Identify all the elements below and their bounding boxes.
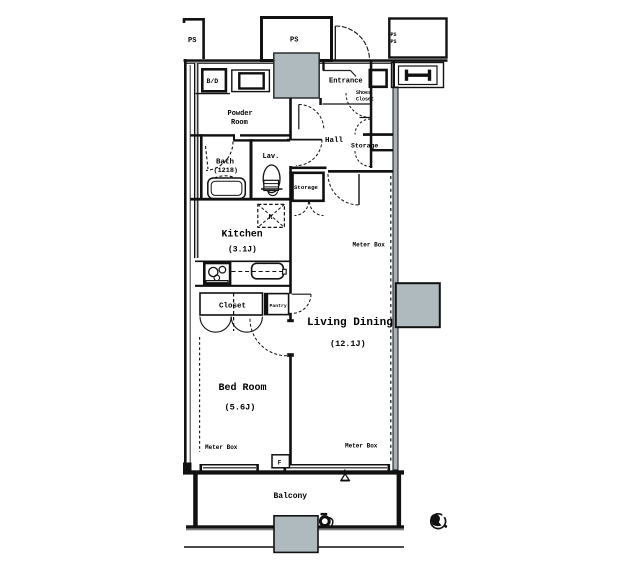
svg-text:R: R <box>269 214 273 221</box>
svg-text:F: F <box>278 460 282 467</box>
svg-text:Entrance: Entrance <box>329 78 363 86</box>
svg-text:Meter Box: Meter Box <box>345 443 378 450</box>
svg-text:Closet: Closet <box>219 302 246 310</box>
svg-text:B/D: B/D <box>207 78 219 85</box>
svg-text:Lav.: Lav. <box>263 153 280 161</box>
svg-text:Storage: Storage <box>351 143 378 150</box>
svg-text:Powder: Powder <box>228 110 253 118</box>
svg-text:Storage: Storage <box>294 184 318 191</box>
svg-text:PS: PS <box>188 37 196 45</box>
svg-text:Kitchen: Kitchen <box>222 229 263 240</box>
svg-text:(5.6J): (5.6J) <box>225 403 256 413</box>
svg-text:Meter Box: Meter Box <box>353 241 386 248</box>
svg-text:Bed Room: Bed Room <box>219 382 267 394</box>
svg-text:Pantry: Pantry <box>270 303 287 309</box>
svg-text:(3.1J): (3.1J) <box>228 245 257 254</box>
svg-text:PS: PS <box>391 32 397 38</box>
svg-text:(1218): (1218) <box>214 167 238 175</box>
svg-text:(12.1J): (12.1J) <box>330 339 366 349</box>
svg-text:Shoes: Shoes <box>356 90 371 96</box>
svg-text:Balcony: Balcony <box>274 492 308 501</box>
svg-text:Hall: Hall <box>325 137 344 145</box>
svg-text:Bath: Bath <box>216 159 235 167</box>
svg-text:Living Dining: Living Dining <box>307 317 393 329</box>
svg-text:Room: Room <box>231 119 248 127</box>
svg-text:PS: PS <box>391 39 397 45</box>
svg-text:Meter Box: Meter Box <box>205 444 238 451</box>
svg-text:PS: PS <box>290 37 298 45</box>
